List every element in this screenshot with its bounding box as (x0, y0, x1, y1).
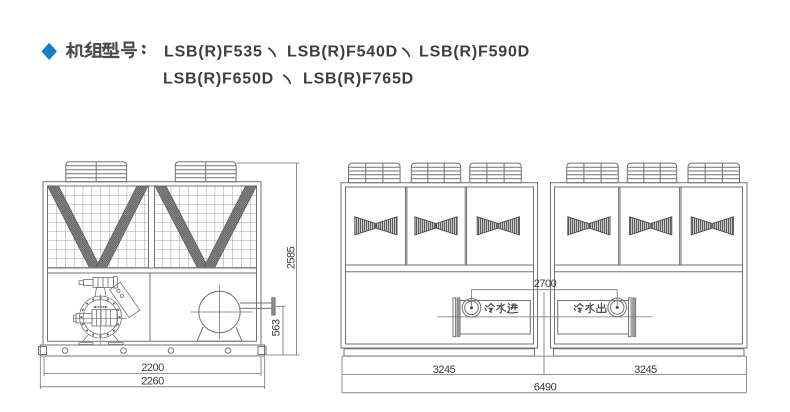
svg-text:563: 563 (271, 319, 283, 336)
svg-text:LSB(R)F590D: LSB(R)F590D (419, 44, 530, 61)
svg-text:3245: 3245 (433, 364, 456, 376)
svg-text:LSB(R)F650D: LSB(R)F650D (163, 71, 274, 88)
svg-text:6490: 6490 (534, 382, 557, 394)
svg-text:2700: 2700 (534, 278, 557, 290)
svg-text:2200: 2200 (141, 362, 164, 374)
svg-text:LSB(R)F765D: LSB(R)F765D (303, 71, 414, 88)
svg-text:LSB(R)F535: LSB(R)F535 (164, 44, 263, 61)
svg-text:2260: 2260 (141, 376, 164, 388)
svg-text:LSB(R)F540D: LSB(R)F540D (287, 44, 398, 61)
svg-text:3245: 3245 (634, 364, 657, 376)
svg-text:2585: 2585 (286, 246, 298, 269)
